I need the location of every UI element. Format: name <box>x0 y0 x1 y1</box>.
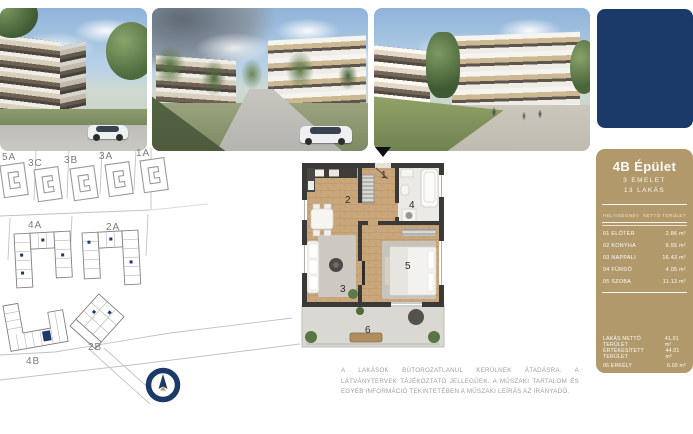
building-side <box>60 41 86 119</box>
table-row: 02 KONYHA 6.55 m² <box>596 240 693 252</box>
apartment-floor-plan: 1 2 3 4 5 6 <box>298 145 448 350</box>
units-subtitle: 13 LAKÁS <box>596 187 693 194</box>
bathtub <box>421 169 438 207</box>
site-label-2a: 2A <box>106 222 120 233</box>
summary-row: ÉRTÉKESÍTETT TERÜLET 44.01 m² <box>596 348 693 360</box>
room-name: 02 KONYHA <box>603 243 636 249</box>
divider <box>602 222 687 226</box>
apartment-info-panel: 4B Épület 3 EMELET 13 LAKÁS HELYISÉGNÉV … <box>596 149 693 373</box>
building-photo-3 <box>374 8 590 151</box>
brochure-page: 5A 3C 3B 3A 1A 4A 2A <box>0 0 693 434</box>
site-label-2b: 2B <box>88 342 102 353</box>
table-header: HELYISÉGNÉV NETTÓ TERÜLET <box>596 213 693 218</box>
room-area: 4.05 m² <box>666 267 686 273</box>
room-number-6: 6 <box>365 325 371 336</box>
table-row: 05 SZOBA 11.13 m² <box>596 276 693 288</box>
radiator <box>402 229 436 236</box>
building-photo-2 <box>152 8 368 151</box>
brand-logo-block <box>597 9 693 128</box>
table-row: 04 FÜRDŐ 4.05 m² <box>596 264 693 276</box>
building-photo-1 <box>0 8 147 151</box>
site-label-3b: 3B <box>64 155 78 166</box>
divider <box>602 292 687 293</box>
summary-area: 44.01 m² <box>666 348 686 360</box>
plant <box>348 289 358 299</box>
summary-area: 6.00 m² <box>667 363 686 369</box>
room-number-4: 4 <box>409 200 415 211</box>
room-number-1: 1 <box>381 170 387 181</box>
building-4a-plan <box>14 231 73 288</box>
plant <box>305 331 317 343</box>
table-row: 01 ELŐTÉR 2.86 m² <box>596 228 693 240</box>
balcony <box>302 305 444 347</box>
summary-row: 06 ERKÉLY 6.00 m² <box>596 360 693 372</box>
house-outlines <box>0 158 168 202</box>
room-number-3: 3 <box>340 284 346 295</box>
site-label-1a: 1A <box>136 148 150 159</box>
site-label-4a: 4A <box>28 220 42 231</box>
sofa <box>307 241 319 293</box>
summary-name: 06 ERKÉLY <box>603 363 632 369</box>
room-area: 6.55 m² <box>666 243 686 249</box>
car <box>88 125 128 139</box>
plant <box>356 307 364 315</box>
table-row: 03 NAPPALI 16.43 m² <box>596 252 693 264</box>
summary-name: ÉRTÉKESÍTETT TERÜLET <box>603 348 666 360</box>
header-net-area: NETTÓ TERÜLET <box>643 213 686 218</box>
room-area: 16.43 m² <box>662 255 686 261</box>
site-label-5a: 5A <box>2 152 16 163</box>
building-4b-plan <box>3 296 68 351</box>
room-name: 01 ELŐTÉR <box>603 231 635 237</box>
building-title: 4B Épület <box>596 159 693 174</box>
summary-name: LAKÁS NETTÓ TERÜLET <box>603 336 665 348</box>
room-name: 04 FÜRDŐ <box>603 267 632 273</box>
summary-area: 41.01 m² <box>665 336 686 348</box>
floors-subtitle: 3 EMELET <box>596 177 693 184</box>
sink <box>401 169 413 177</box>
room-area: 11.13 m² <box>663 279 686 285</box>
divider <box>602 204 687 205</box>
disclaimer-text: A LAKÁSOK BÚTOROZATLANUL KERÜLNEK ÁTADÁS… <box>341 366 579 398</box>
compass-icon <box>149 371 178 400</box>
plant <box>428 331 440 343</box>
site-label-4b: 4B <box>26 356 40 367</box>
site-label-3c: 3C <box>28 158 43 169</box>
summary-block: LAKÁS NETTÓ TERÜLET 41.01 m² ÉRTÉKESÍTET… <box>596 336 693 372</box>
entrance-arrow-icon <box>375 147 391 157</box>
building-2a-plan <box>82 230 141 287</box>
wardrobe <box>362 175 374 203</box>
header-room-name: HELYISÉGNÉV <box>603 213 639 218</box>
room-area: 2.86 m² <box>666 231 686 237</box>
car <box>300 126 352 143</box>
room-name: 03 NAPPALI <box>603 255 636 261</box>
bistro-table <box>408 309 424 325</box>
highlighted-unit <box>42 330 52 341</box>
room-name: 05 SZOBA <box>603 279 631 285</box>
summary-row: LAKÁS NETTÓ TERÜLET 41.01 m² <box>596 336 693 348</box>
people <box>374 8 590 151</box>
building-2b-plan <box>70 294 124 349</box>
site-label-3a: 3A <box>99 151 113 162</box>
toilet <box>401 185 409 195</box>
site-plan: 5A 3C 3B 3A 1A 4A 2A <box>0 148 300 420</box>
room-number-5: 5 <box>405 261 411 272</box>
room-number-2: 2 <box>345 195 351 206</box>
coffee-table-top <box>333 262 339 268</box>
